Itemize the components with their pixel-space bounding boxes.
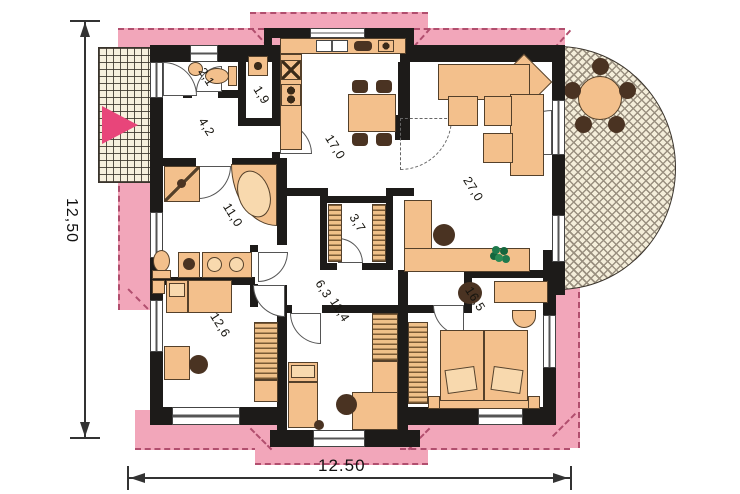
wall <box>150 158 196 166</box>
terrace-chair <box>575 116 592 133</box>
wardrobe-cabinet <box>372 361 398 393</box>
shower-drain <box>177 179 186 188</box>
wall <box>400 45 565 62</box>
nightstand <box>152 280 165 294</box>
dim-line-left <box>84 22 86 438</box>
office-chair <box>336 394 357 415</box>
water-heater <box>248 56 268 76</box>
kitchen-fridge <box>281 60 301 80</box>
office-chair <box>433 224 455 246</box>
bed-footboard <box>434 400 534 409</box>
wardrobe <box>254 322 278 380</box>
sofa-right <box>510 94 544 176</box>
wall <box>362 263 393 270</box>
pillow <box>169 283 185 297</box>
closet-shelf <box>372 204 386 262</box>
terrace-chair <box>619 82 636 99</box>
kitchen-cooktop <box>281 84 301 106</box>
wall <box>272 62 280 122</box>
terrace-door <box>552 100 565 155</box>
pillow <box>444 366 477 394</box>
window <box>543 315 556 368</box>
closet-shelf <box>328 204 342 262</box>
wardrobe <box>372 313 398 361</box>
wardrobe-cabinet <box>254 380 278 402</box>
window <box>478 407 523 425</box>
office-chair <box>189 355 208 374</box>
kitchen-appliance <box>378 40 394 52</box>
desk <box>164 346 190 380</box>
coffee-table <box>483 133 513 163</box>
bed-divider <box>289 381 317 383</box>
window <box>190 45 218 62</box>
dining-table <box>348 94 396 132</box>
living-desk <box>404 248 530 272</box>
wall <box>280 188 328 196</box>
armchair <box>448 96 478 126</box>
nightstand <box>428 396 440 409</box>
wall <box>277 160 287 245</box>
dim-arrow-right <box>553 473 568 483</box>
kitchen-sink <box>316 40 348 52</box>
entrance-arrow-icon <box>102 106 138 144</box>
washer-drum <box>183 258 195 270</box>
wall <box>218 90 246 98</box>
dim-arrow-left <box>130 473 145 483</box>
sink <box>207 257 222 272</box>
pillow <box>490 366 523 394</box>
sink <box>229 257 244 272</box>
desk <box>352 392 398 430</box>
window <box>310 28 365 38</box>
wall <box>320 196 393 203</box>
desk <box>494 281 548 303</box>
wardrobe <box>408 322 428 404</box>
terrace-table <box>578 76 622 120</box>
dining-chair <box>352 80 368 93</box>
entrance-door-opening <box>150 62 163 98</box>
wall <box>287 305 292 313</box>
kitchen-stove <box>354 41 372 51</box>
terrace-chair <box>608 116 625 133</box>
window <box>150 300 163 352</box>
window <box>552 215 565 262</box>
dining-chair <box>376 80 392 93</box>
window <box>313 430 365 447</box>
dim-tick <box>127 466 129 490</box>
toilet-tank <box>152 270 171 279</box>
dim-label-bottom: 12.50 <box>318 456 366 476</box>
dim-tick <box>70 437 100 439</box>
wall <box>250 245 258 252</box>
wc-toilet-tank <box>228 66 237 86</box>
dim-line-bottom <box>127 477 572 479</box>
bed-divider <box>187 281 189 312</box>
dim-tick <box>570 466 572 490</box>
wall <box>238 45 246 125</box>
plant-icon <box>492 246 500 254</box>
dim-arrow-down <box>80 422 90 437</box>
bed-divider <box>483 331 485 401</box>
wall <box>398 407 556 425</box>
wall <box>398 270 408 423</box>
dining-chair <box>376 133 392 146</box>
wall <box>320 196 327 270</box>
dim-arrow-up <box>80 22 90 37</box>
nightstand <box>528 396 540 409</box>
bedside-stool <box>314 420 324 430</box>
armchair <box>484 96 512 126</box>
wall <box>386 188 414 196</box>
terrace-chair <box>592 58 609 75</box>
window <box>172 407 240 425</box>
pillow <box>291 365 315 378</box>
toilet <box>153 250 170 272</box>
dining-chair <box>352 133 368 146</box>
terrace-chair <box>564 82 581 99</box>
dim-label-left: 12,50 <box>62 198 80 243</box>
floor-plan: 2,1 1,9 4,2 17,0 11,0 3,7 27,0 6,3 12,6 … <box>0 0 740 494</box>
wall <box>320 263 337 270</box>
wall <box>386 196 393 270</box>
